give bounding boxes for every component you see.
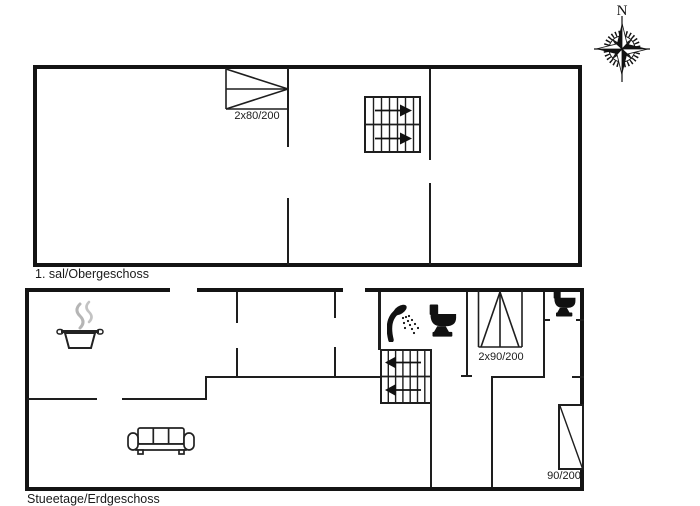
wall-segment	[25, 288, 170, 292]
wall-segment	[25, 288, 29, 491]
wall-segment	[429, 69, 431, 160]
pot-icon	[56, 300, 104, 350]
wall-segment	[578, 65, 582, 267]
wall-segment	[491, 376, 493, 487]
wall-segment	[122, 398, 206, 400]
floorplan-canvas: 2x80/200 1. sal/Obergeschoss N	[0, 0, 700, 500]
wall-segment	[27, 398, 97, 400]
wall-segment	[287, 198, 289, 265]
upper-floor-label: 1. sal/Obergeschoss	[35, 267, 149, 281]
wall-segment	[576, 319, 584, 321]
stairs-down-icon	[380, 349, 432, 404]
wall-segment	[334, 347, 336, 378]
wall-segment	[205, 376, 207, 400]
wall-segment	[205, 376, 381, 378]
wall-segment	[33, 65, 582, 69]
wall-segment	[33, 65, 37, 267]
floorplan-page: { "compass": { "north_label": "N" }, "up…	[0, 0, 700, 500]
sofa-icon	[126, 426, 196, 456]
window-dimension-label: 2x80/200	[224, 110, 290, 122]
wall-segment	[543, 292, 545, 378]
bed-icon	[558, 404, 584, 470]
wall-segment	[378, 292, 381, 350]
wc-toilet-icon	[549, 290, 577, 318]
wall-segment	[236, 292, 238, 323]
wall-segment	[197, 288, 343, 292]
wall-segment	[25, 487, 584, 491]
bed-dimension-label: 90/200	[543, 470, 585, 482]
wall-segment	[466, 292, 468, 377]
wall-segment	[334, 292, 336, 318]
window-symbol-icon	[224, 67, 290, 111]
wall-segment	[543, 319, 550, 321]
door-symbol-icon	[476, 290, 525, 350]
stairs-up-icon	[364, 96, 421, 153]
ground-floor-label: Stueetage/Erdgeschoss	[27, 492, 160, 506]
wall-segment	[461, 375, 472, 377]
compass-rose-icon: N	[592, 0, 654, 86]
shower-icon	[387, 304, 419, 342]
wall-segment	[491, 376, 545, 378]
wall-segment	[236, 348, 238, 378]
wall-segment	[429, 183, 431, 265]
wall-segment	[572, 376, 584, 378]
door-dimension-label: 2x90/200	[471, 351, 531, 363]
toilet-icon	[424, 304, 458, 339]
